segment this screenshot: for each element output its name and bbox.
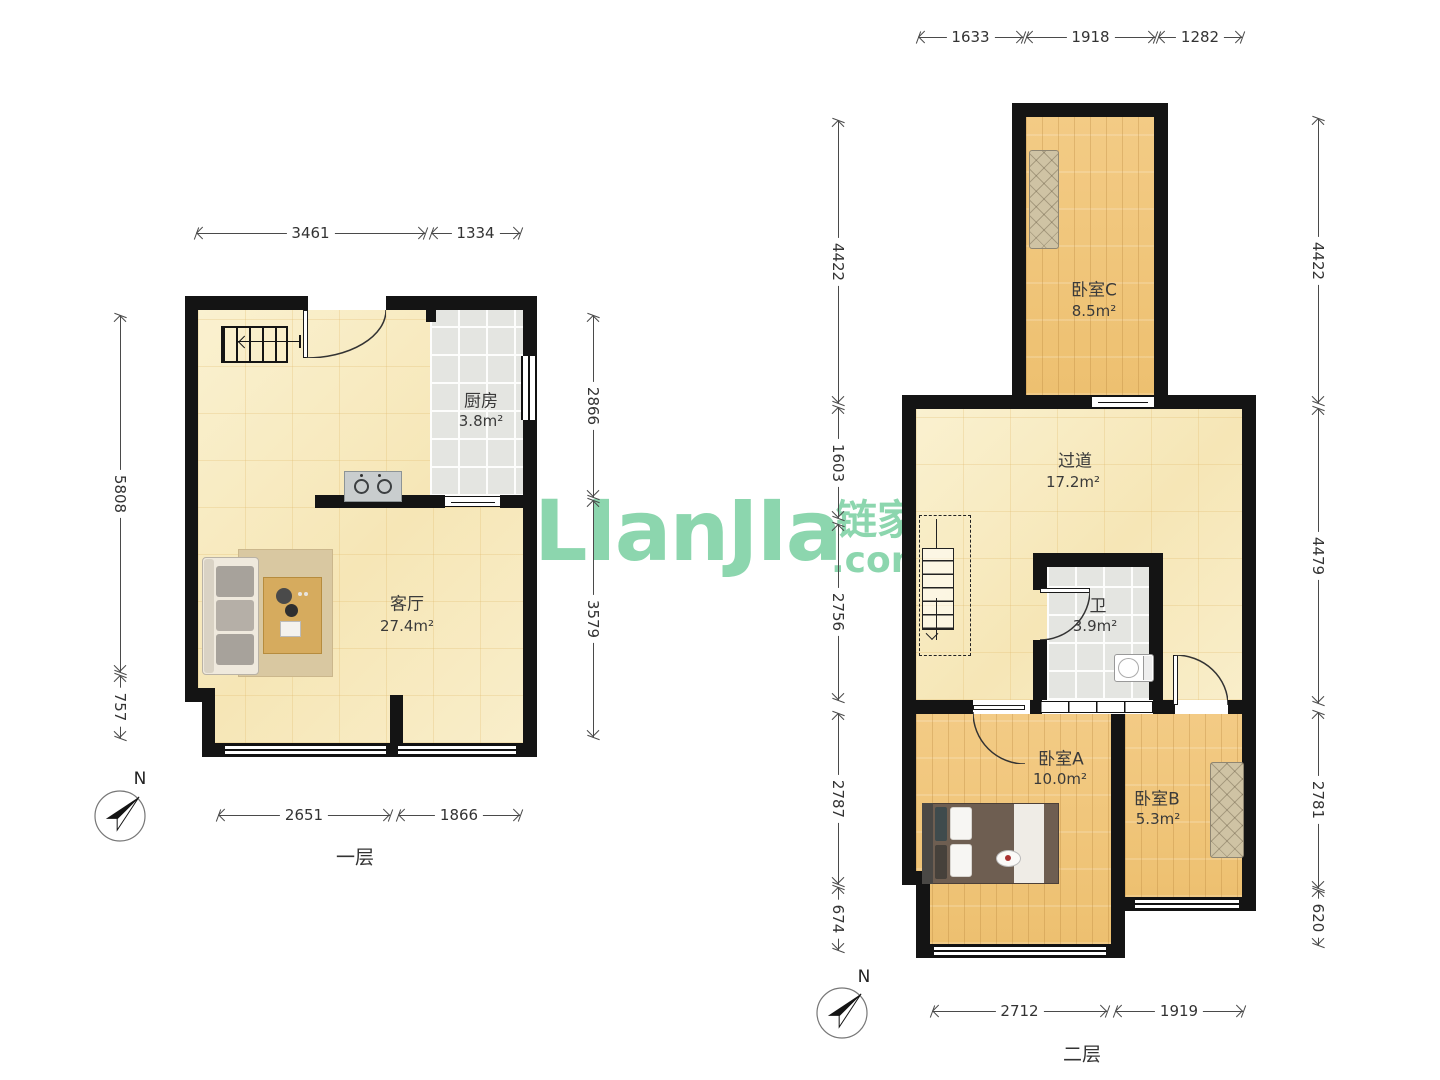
- floorplan-image: LIanJIa 链家 .com 厨房 3.8m²: [0, 0, 1440, 1080]
- kitchen-sliding-door: [445, 496, 500, 507]
- wall: [500, 495, 523, 508]
- compass-north-label: N: [134, 769, 147, 789]
- dimension-h: 1334: [431, 225, 520, 241]
- wall: [1154, 103, 1168, 395]
- bedroomB-door-arc: [1175, 655, 1228, 705]
- stove-burner: [354, 479, 369, 494]
- room-label-bath: 卫: [1090, 592, 1107, 617]
- stair-line: [936, 519, 937, 549]
- sofa-cushion: [216, 600, 254, 631]
- dimension-v: 674: [830, 887, 846, 950]
- stove: [344, 471, 402, 502]
- dimension-h: 1282: [1158, 29, 1242, 45]
- wall: [902, 395, 1256, 409]
- dimension-h: 1633: [918, 29, 1023, 45]
- dimension-label: 2756: [829, 588, 847, 636]
- room-area-bedroomB: 5.3m²: [1136, 810, 1180, 828]
- wall: [1012, 103, 1168, 117]
- dimension-h: 2651: [218, 807, 390, 823]
- compass-north-label: N: [858, 967, 871, 987]
- dimension-v: 4422: [830, 120, 846, 403]
- wall: [1242, 395, 1256, 911]
- dimension-v: 2866: [585, 315, 601, 497]
- wall: [426, 310, 436, 322]
- wall: [1033, 553, 1163, 567]
- wall: [916, 700, 973, 714]
- dimension-label: 2712: [995, 1002, 1043, 1020]
- sofa-cushion: [216, 566, 254, 597]
- dimension-label: 620: [1309, 898, 1327, 937]
- bed-headboard: [922, 803, 933, 884]
- compass-icon: [93, 785, 151, 843]
- dimension-v: 2756: [830, 524, 846, 700]
- stove-burner: [377, 479, 392, 494]
- dimension-v: 4479: [1310, 408, 1326, 703]
- dimension-v: 757: [112, 675, 128, 738]
- table-decor: [304, 592, 308, 596]
- dimension-v: 4422: [1310, 118, 1326, 403]
- wall: [1033, 640, 1047, 700]
- dimension-label: 2787: [829, 774, 847, 822]
- sofa-back: [204, 559, 214, 673]
- living-room-window: [398, 744, 516, 756]
- sofa-cushion: [216, 634, 254, 665]
- dimension-label: 1603: [829, 438, 847, 486]
- room-label-kitchen: 厨房: [464, 387, 498, 412]
- dimension-label: 1918: [1066, 28, 1114, 46]
- floor1-label: 一层: [336, 843, 374, 870]
- bed-pillow: [950, 807, 972, 840]
- wall: [1012, 103, 1026, 395]
- stair-line-end: [299, 335, 301, 348]
- bed-decor-dot: [1005, 855, 1011, 861]
- bathroom-partition-panel: [1040, 701, 1153, 713]
- stove-knob: [378, 474, 381, 477]
- table-decor: [285, 604, 298, 617]
- dimension-label: 1334: [451, 224, 499, 242]
- bedroomA-door-leaf: [973, 705, 1025, 710]
- bedroomA-door-arc: [973, 712, 1025, 764]
- room-area-bedroomA: 10.0m²: [1033, 770, 1087, 788]
- room-label-bedroomC: 卧室C: [1071, 276, 1117, 301]
- wall: [386, 296, 537, 310]
- dimension-label: 1866: [435, 806, 483, 824]
- wall-notch: [185, 702, 202, 757]
- dimension-label: 1919: [1155, 1002, 1203, 1020]
- dimension-label: 4422: [1309, 236, 1327, 284]
- bedroomB-window: [1135, 898, 1239, 910]
- wall: [1111, 714, 1125, 958]
- room-area-living: 27.4m²: [380, 617, 434, 635]
- entry-door-arc: [306, 310, 386, 358]
- dimension-v: 5808: [112, 315, 128, 672]
- dimension-v: 620: [1310, 890, 1326, 945]
- floor2-label: 二层: [1063, 1040, 1101, 1067]
- dimension-h: 1918: [1026, 29, 1155, 45]
- lianjia-watermark-brand: LIanJIa: [534, 489, 840, 573]
- table-decor: [276, 588, 292, 604]
- dimension-v: 1603: [830, 407, 846, 518]
- bed-pillow: [950, 844, 972, 877]
- dimension-label: 757: [111, 687, 129, 726]
- room-area-hallway: 17.2m²: [1046, 473, 1100, 491]
- wall: [902, 395, 916, 885]
- bed-runner: [1014, 804, 1044, 883]
- dimension-v: 2781: [1310, 712, 1326, 888]
- bed-cushion: [935, 807, 947, 841]
- toilet-bowl: [1118, 658, 1139, 678]
- room-area-kitchen: 3.8m²: [459, 412, 503, 430]
- dimension-label: 1633: [946, 28, 994, 46]
- wall: [185, 296, 308, 310]
- dimension-label: 4479: [1309, 531, 1327, 579]
- dimension-label: 2651: [280, 806, 328, 824]
- dimension-label: 3461: [286, 224, 334, 242]
- table-decor: [298, 592, 302, 596]
- wall: [185, 296, 198, 702]
- living-room-window: [225, 744, 386, 756]
- dimension-label: 674: [829, 899, 847, 938]
- room-label-living: 客厅: [390, 590, 424, 615]
- wall: [1033, 553, 1047, 590]
- wardrobe: [1029, 150, 1059, 249]
- compass-icon: [815, 982, 873, 1040]
- dimension-label: 3579: [584, 594, 602, 642]
- dimension-label: 5808: [111, 469, 129, 517]
- dimension-h: 3461: [196, 225, 425, 241]
- room-area-bedroomC: 8.5m²: [1072, 302, 1116, 320]
- dimension-label: 2781: [1309, 776, 1327, 824]
- bedroomA-window: [934, 945, 1106, 957]
- room-label-bedroomB: 卧室B: [1134, 785, 1180, 810]
- dimension-h: 2712: [932, 1003, 1107, 1019]
- dimension-label: 1282: [1176, 28, 1224, 46]
- room-area-bath: 3.9m²: [1073, 617, 1117, 635]
- wall: [1153, 700, 1175, 714]
- stove-knob: [360, 474, 363, 477]
- table-tray: [280, 621, 301, 637]
- dimension-h: 1866: [398, 807, 520, 823]
- wall: [390, 695, 403, 743]
- room-label-hallway: 过道: [1058, 447, 1092, 472]
- dimension-v: 3579: [585, 500, 601, 737]
- dimension-label: 4422: [829, 237, 847, 285]
- bedroomC-sliding-door: [1092, 396, 1154, 408]
- staircase: [922, 548, 954, 630]
- wardrobe: [1210, 762, 1244, 858]
- bed-cushion: [935, 845, 947, 879]
- dimension-h: 1919: [1115, 1003, 1243, 1019]
- wall: [1228, 700, 1256, 714]
- wall: [185, 688, 215, 702]
- dimension-label: 2866: [584, 382, 602, 430]
- room-label-bedroomA: 卧室A: [1038, 745, 1084, 770]
- staircase: [221, 326, 288, 363]
- kitchen-window: [521, 356, 537, 420]
- toilet-tank: [1143, 656, 1152, 680]
- dimension-v: 2787: [830, 713, 846, 884]
